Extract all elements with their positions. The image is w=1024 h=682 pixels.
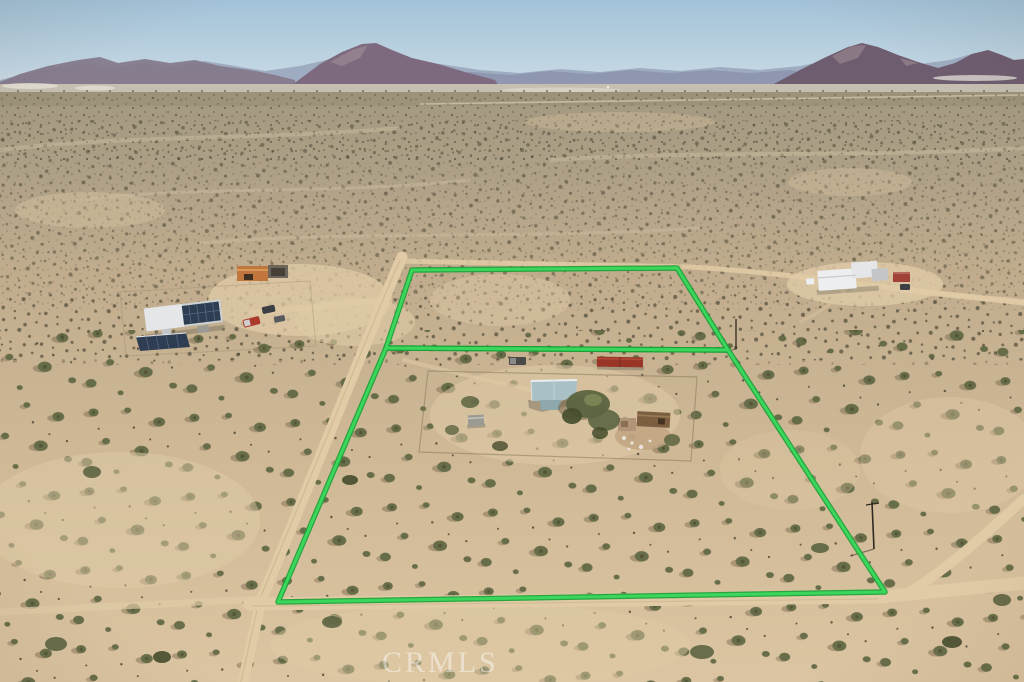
vignette-overlay	[0, 0, 1024, 682]
aerial-photo-canvas	[0, 0, 1024, 682]
aerial-photo: CRMLS	[0, 0, 1024, 682]
